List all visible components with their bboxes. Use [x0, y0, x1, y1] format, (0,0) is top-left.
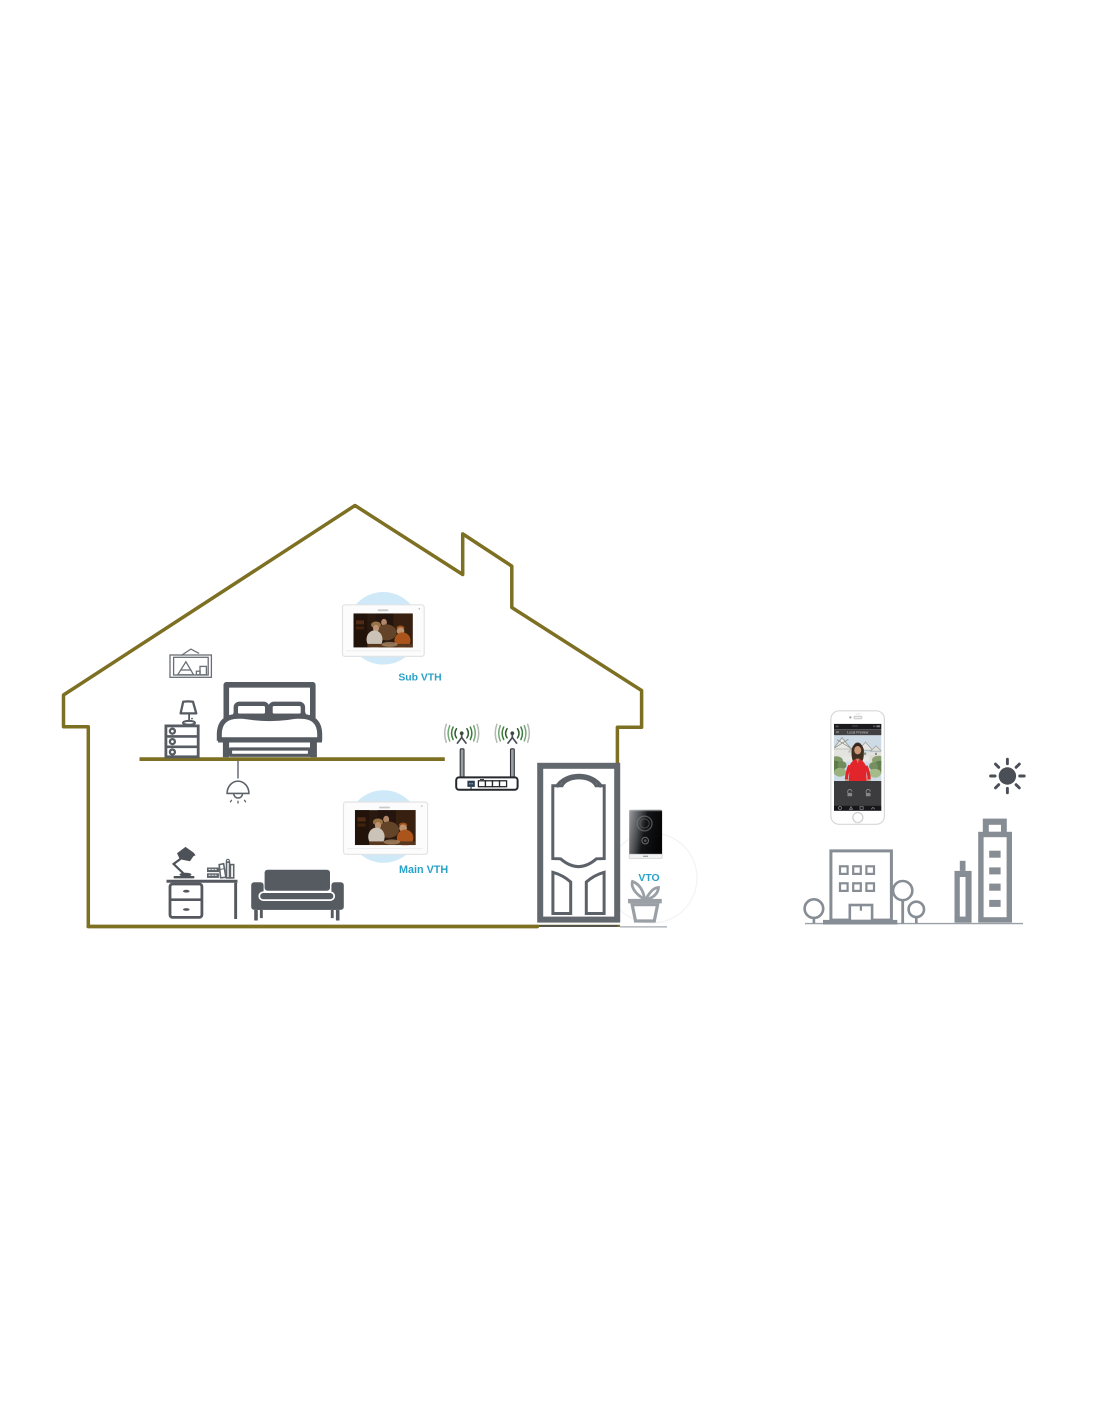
- svg-text:Local Preview: Local Preview: [847, 731, 869, 735]
- svg-text:Main VTH: Main VTH: [399, 864, 448, 876]
- svg-text:VTO: VTO: [638, 873, 659, 884]
- svg-text:Sub VTH: Sub VTH: [398, 673, 441, 684]
